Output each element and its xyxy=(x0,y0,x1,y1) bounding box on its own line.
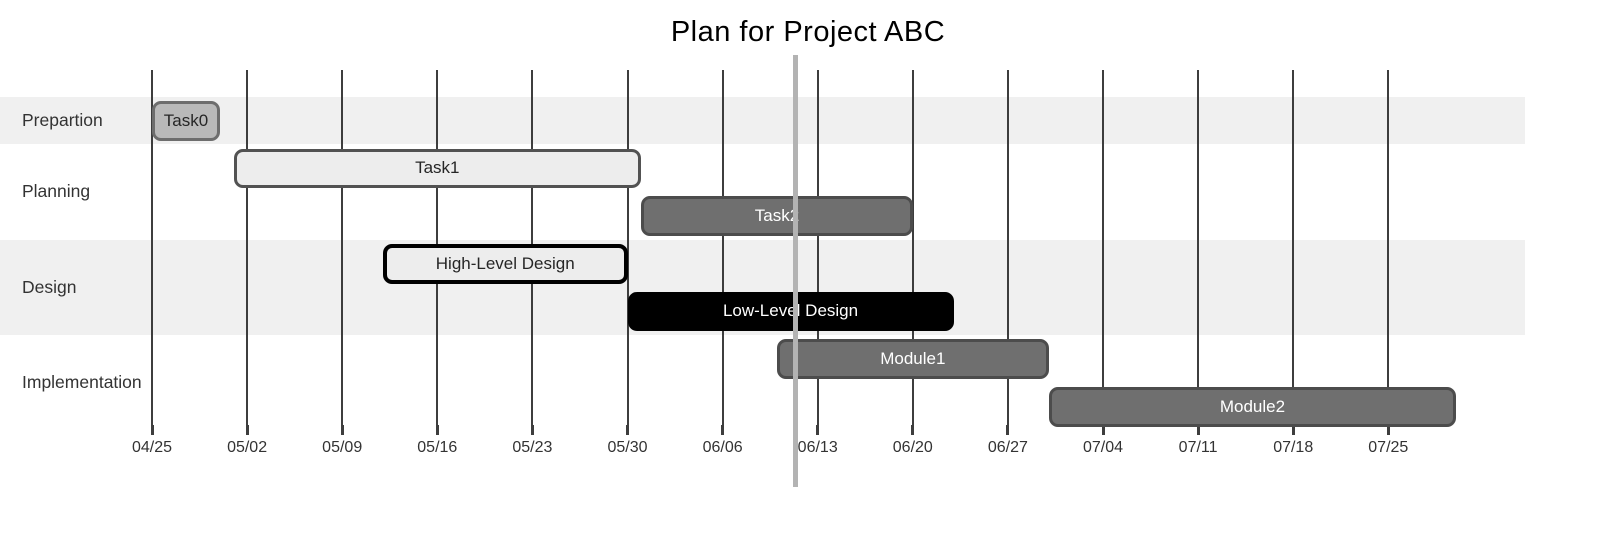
axis-tick xyxy=(1006,425,1009,435)
axis-tick-label: 05/09 xyxy=(297,439,387,457)
axis-tick xyxy=(721,425,724,435)
axis-tick xyxy=(341,425,344,435)
axis-tick-label: 05/23 xyxy=(487,439,577,457)
section-band-prepartion xyxy=(0,97,1525,145)
axis-tick-label: 06/13 xyxy=(773,439,863,457)
axis-tick-label: 04/25 xyxy=(107,439,197,457)
axis-tick-label: 05/02 xyxy=(202,439,292,457)
grid-line xyxy=(1387,70,1389,425)
axis-tick xyxy=(531,425,534,435)
axis-tick-label: 07/25 xyxy=(1343,439,1433,457)
task-bar-task0: Task0 xyxy=(152,101,220,141)
grid-line xyxy=(1197,70,1199,425)
chart-title: Plan for Project ABC xyxy=(8,16,1600,49)
axis-tick-label: 06/27 xyxy=(963,439,1053,457)
axis-tick xyxy=(246,425,249,435)
task-bar-module1: Module1 xyxy=(777,339,1049,379)
grid-line xyxy=(627,70,629,425)
section-label-planning: Planning xyxy=(22,144,90,239)
axis-tick-label: 05/30 xyxy=(583,439,673,457)
axis-tick-label: 07/18 xyxy=(1248,439,1338,457)
axis-tick-label: 07/04 xyxy=(1058,439,1148,457)
gantt-chart: Plan for Project ABC PrepartionTask0Plan… xyxy=(0,0,1600,536)
task-bar-module2: Module2 xyxy=(1049,387,1457,427)
axis-tick xyxy=(816,425,819,435)
section-label-prepartion: Prepartion xyxy=(22,97,103,145)
section-label-implementation: Implementation xyxy=(22,335,142,430)
grid-line xyxy=(341,70,343,425)
axis-tick-label: 06/20 xyxy=(868,439,958,457)
axis-tick-label: 07/11 xyxy=(1153,439,1243,457)
axis-tick xyxy=(626,425,629,435)
grid-line xyxy=(1292,70,1294,425)
task-bar-low-level-design: Low-Level Design xyxy=(628,292,954,332)
task-bar-high-level-design: High-Level Design xyxy=(383,244,628,284)
axis-tick xyxy=(911,425,914,435)
grid-line xyxy=(246,70,248,425)
grid-line xyxy=(1102,70,1104,425)
grid-line xyxy=(722,70,724,425)
today-marker-line xyxy=(793,55,798,487)
axis-tick-label: 06/06 xyxy=(678,439,768,457)
axis-tick xyxy=(151,425,154,435)
task-bar-task2: Task2 xyxy=(641,196,913,236)
axis-tick xyxy=(436,425,439,435)
task-bar-task1: Task1 xyxy=(234,149,642,189)
section-label-design: Design xyxy=(22,240,76,335)
axis-tick-label: 05/16 xyxy=(392,439,482,457)
